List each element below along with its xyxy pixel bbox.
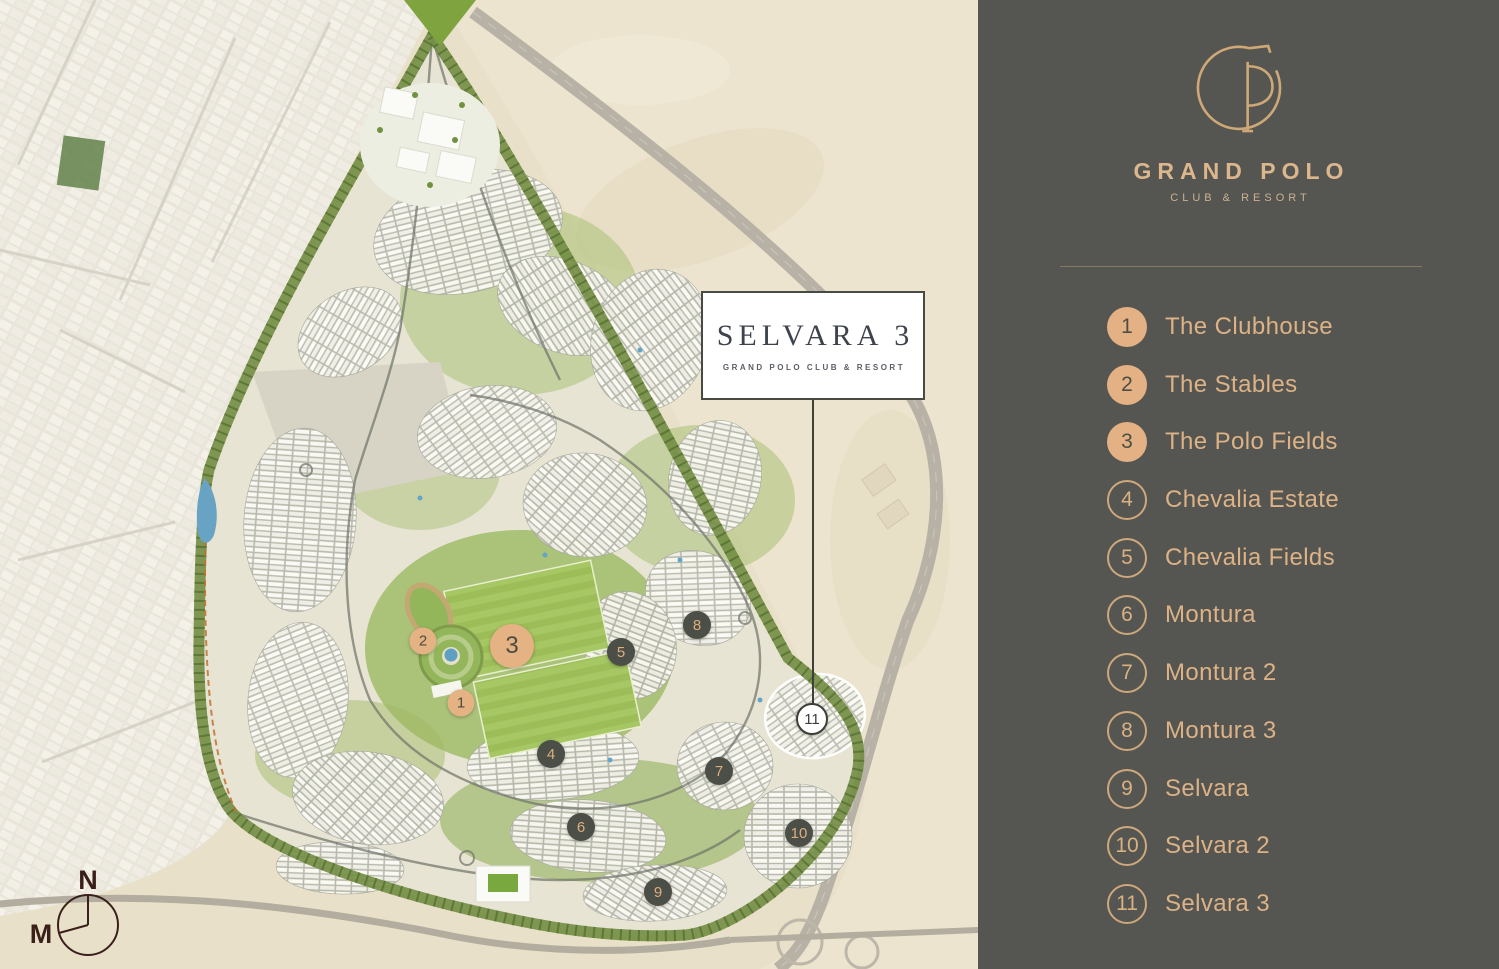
callout-leader-line [812, 399, 814, 704]
masterplan-map-art [0, 0, 978, 969]
legend-number-badge: 4 [1107, 480, 1147, 520]
legend-item-the-polo-fields[interactable]: 3 The Polo Fields [1107, 422, 1339, 462]
legend-number-badge: 6 [1107, 595, 1147, 635]
legend-number-badge: 5 [1107, 538, 1147, 578]
legend-item-label: Montura [1165, 601, 1256, 629]
legend-item-label: The Stables [1165, 371, 1297, 399]
map-marker-6[interactable]: 6 [567, 813, 595, 841]
legend-item-selvara-2[interactable]: 10 Selvara 2 [1107, 826, 1339, 866]
commercial-district [360, 83, 500, 207]
callout-title: SELVARA 3 [712, 319, 915, 353]
legend-item-montura-2[interactable]: 7 Montura 2 [1107, 653, 1339, 693]
map-marker-3[interactable]: 3 [490, 624, 534, 668]
legend-item-label: The Polo Fields [1165, 428, 1338, 456]
legend-item-the-clubhouse[interactable]: 1 The Clubhouse [1107, 307, 1339, 347]
map-marker-8[interactable]: 8 [683, 611, 711, 639]
legend-number-badge: 10 [1107, 826, 1147, 866]
legend-item-montura-3[interactable]: 8 Montura 3 [1107, 711, 1339, 751]
legend-number-badge: 1 [1107, 307, 1147, 347]
legend-sidebar: GRAND POLO CLUB & RESORT 1 The Clubhouse… [978, 0, 1499, 969]
city-park [57, 135, 106, 190]
gp-monogram-icon [1185, 36, 1293, 144]
compass-magnetic-label: M [30, 919, 53, 949]
map-panel: 1 2 3 4 5 6 7 8 9 10 11 SELVARA 3 GRAND … [0, 0, 978, 969]
legend-number-badge: 8 [1107, 711, 1147, 751]
legend-number-badge: 11 [1107, 884, 1147, 924]
map-marker-1[interactable]: 1 [448, 690, 475, 717]
map-marker-2[interactable]: 2 [410, 628, 437, 655]
compass-rose: N M [8, 846, 158, 969]
legend-item-selvara[interactable]: 9 Selvara [1107, 769, 1339, 809]
sidebar-divider [1060, 266, 1422, 267]
legend-item-label: Montura 3 [1165, 717, 1277, 745]
legend-item-chevalia-fields[interactable]: 5 Chevalia Fields [1107, 538, 1339, 578]
legend-item-montura[interactable]: 6 Montura [1107, 595, 1339, 635]
map-marker-11[interactable]: 11 [796, 703, 828, 735]
legend-number-badge: 2 [1107, 365, 1147, 405]
legend-item-label: Selvara 3 [1165, 890, 1270, 918]
brand-name: GRAND POLO [978, 158, 1499, 185]
map-marker-7[interactable]: 7 [705, 757, 733, 785]
map-marker-4[interactable]: 4 [537, 740, 565, 768]
map-marker-5[interactable]: 5 [607, 638, 635, 666]
brand-block: GRAND POLO CLUB & RESORT [978, 0, 1499, 204]
legend-item-label: Selvara 2 [1165, 832, 1270, 860]
legend-item-the-stables[interactable]: 2 The Stables [1107, 365, 1339, 405]
callout-subtitle: GRAND POLO CLUB & RESORT [721, 363, 905, 372]
legend-number-badge: 3 [1107, 422, 1147, 462]
legend-item-label: Selvara [1165, 775, 1249, 803]
school-building [476, 866, 530, 902]
legend-item-selvara-3[interactable]: 11 Selvara 3 [1107, 884, 1339, 924]
legend-item-label: Chevalia Fields [1165, 544, 1335, 572]
legend-item-chevalia-estate[interactable]: 4 Chevalia Estate [1107, 480, 1339, 520]
legend-item-label: The Clubhouse [1165, 313, 1333, 341]
legend-number-badge: 9 [1107, 769, 1147, 809]
legend-list: 1 The Clubhouse 2 The Stables 3 The Polo… [1107, 307, 1339, 924]
selvara3-callout-card: SELVARA 3 GRAND POLO CLUB & RESORT [701, 291, 925, 400]
compass-north-label: N [78, 865, 98, 895]
legend-number-badge: 7 [1107, 653, 1147, 693]
brand-tagline: CLUB & RESORT [978, 192, 1499, 204]
legend-item-label: Chevalia Estate [1165, 486, 1339, 514]
map-marker-10[interactable]: 10 [785, 819, 813, 847]
map-marker-9[interactable]: 9 [644, 878, 672, 906]
masterplan-screenshot: 1 2 3 4 5 6 7 8 9 10 11 SELVARA 3 GRAND … [0, 0, 1499, 969]
legend-item-label: Montura 2 [1165, 659, 1277, 687]
